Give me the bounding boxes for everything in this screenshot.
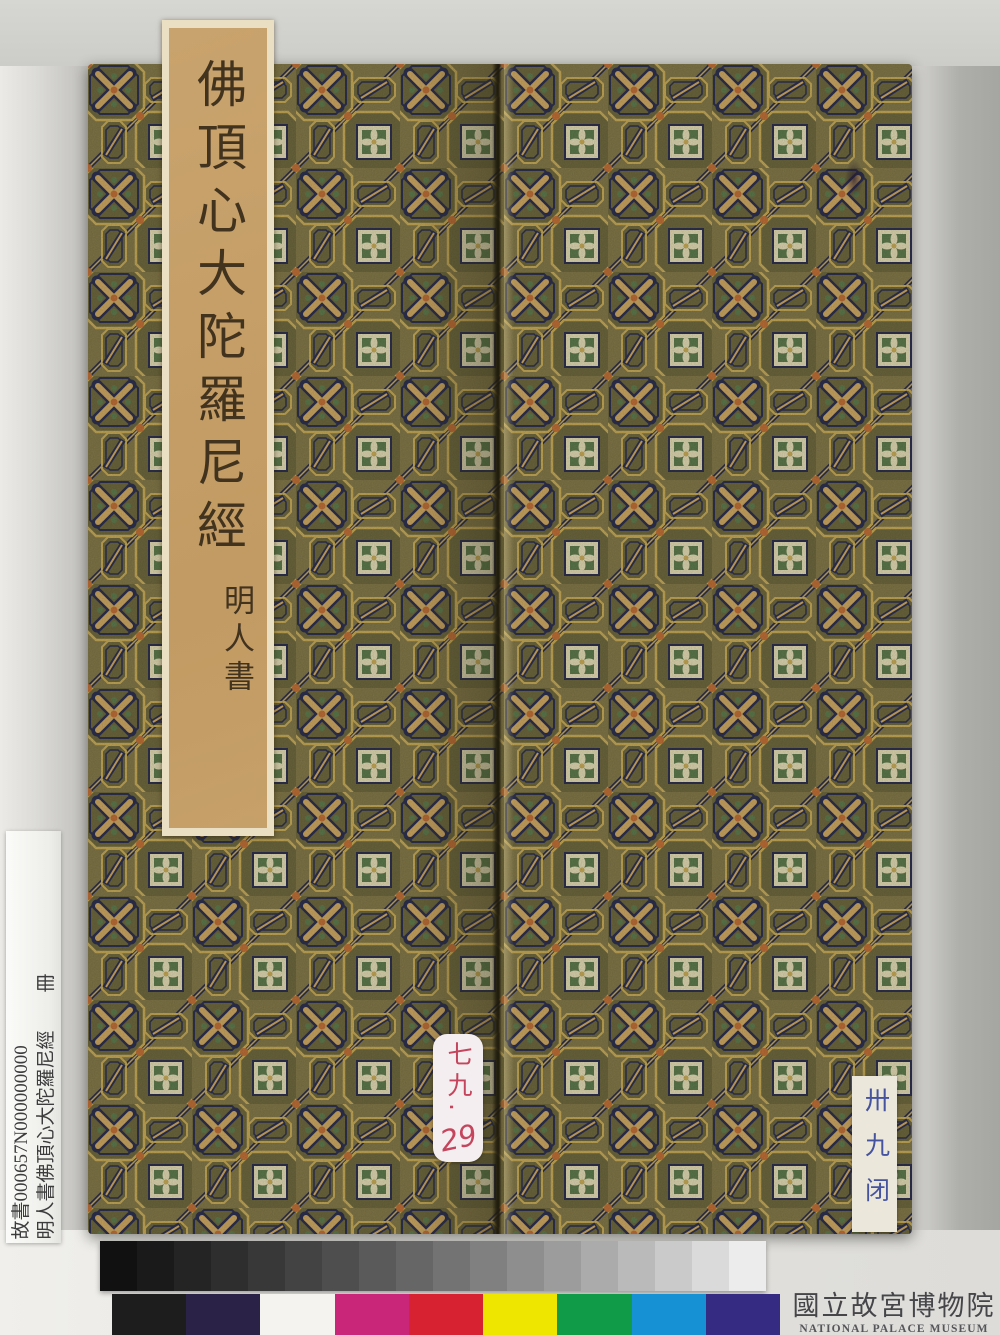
- backdrop-top: [0, 0, 1000, 66]
- catalog-line-2: 明人書佛頂心大陀羅尼經 冊: [34, 835, 59, 1240]
- museum-photo-scene: 佛頂心大陀羅尼經 明人書 故書000657N000000000 明人書佛頂心大陀…: [0, 0, 1000, 1335]
- title-slip: 佛頂心大陀羅尼經 明人書: [162, 20, 274, 836]
- color-patch: [260, 1294, 334, 1335]
- grayscale-step: [692, 1241, 729, 1291]
- grayscale-step: [211, 1241, 248, 1291]
- color-calibration-patches: [112, 1294, 780, 1335]
- color-patch: [409, 1294, 483, 1335]
- catalog-number-label: 故書000657N000000000 明人書佛頂心大陀羅尼經 冊: [6, 831, 61, 1243]
- cover-edge-highlight: [504, 64, 514, 1234]
- grayscale-step: [285, 1241, 322, 1291]
- shelf-tag-blue: 卅九闭: [852, 1076, 897, 1232]
- color-patch: [706, 1294, 780, 1335]
- color-patch: [632, 1294, 706, 1335]
- shelf-tag-pink: 七九. 29: [433, 1034, 483, 1162]
- cover-center-seam: [492, 64, 504, 1234]
- color-patch: [112, 1294, 186, 1335]
- grayscale-step: [729, 1241, 766, 1291]
- grayscale-step: [100, 1241, 137, 1291]
- grayscale-step: [248, 1241, 285, 1291]
- fabric-stain: [845, 160, 863, 198]
- museum-mark: 國立故宮博物院 NATIONAL PALACE MUSEUM: [788, 1284, 1000, 1335]
- catalog-line-1: 故書000657N000000000: [9, 835, 34, 1240]
- title-slip-paper: 佛頂心大陀羅尼經 明人書: [169, 28, 267, 828]
- grayscale-step: [618, 1241, 655, 1291]
- museum-name-english: NATIONAL PALACE MUSEUM: [788, 1323, 1000, 1335]
- grayscale-step: [322, 1241, 359, 1291]
- backdrop-right: [910, 0, 1000, 1240]
- color-patch: [483, 1294, 557, 1335]
- grayscale-step: [359, 1241, 396, 1291]
- grayscale-step: [581, 1241, 618, 1291]
- catalog-number-text: 故書000657N000000000 明人書佛頂心大陀羅尼經 冊: [9, 835, 59, 1240]
- shelf-tag-blue-text: 卅九闭: [857, 1087, 893, 1222]
- grayscale-step: [433, 1241, 470, 1291]
- title-text: 佛頂心大陀羅尼經: [182, 58, 254, 562]
- museum-name-chinese: 國立故宮博物院: [788, 1284, 1000, 1323]
- grayscale-step: [655, 1241, 692, 1291]
- grayscale-step: [507, 1241, 544, 1291]
- color-patch: [557, 1294, 631, 1335]
- grayscale-step: [174, 1241, 211, 1291]
- grayscale-calibration-strip: [100, 1241, 766, 1291]
- shelf-tag-pink-cjk: 七九.: [440, 1041, 476, 1117]
- color-patch: [335, 1294, 409, 1335]
- title-byline: 明人書: [214, 584, 259, 698]
- grayscale-step: [544, 1241, 581, 1291]
- grayscale-step: [470, 1241, 507, 1291]
- grayscale-step: [137, 1241, 174, 1291]
- shelf-tag-pink-number: 29: [436, 1118, 479, 1159]
- grayscale-step: [396, 1241, 433, 1291]
- color-patch: [186, 1294, 260, 1335]
